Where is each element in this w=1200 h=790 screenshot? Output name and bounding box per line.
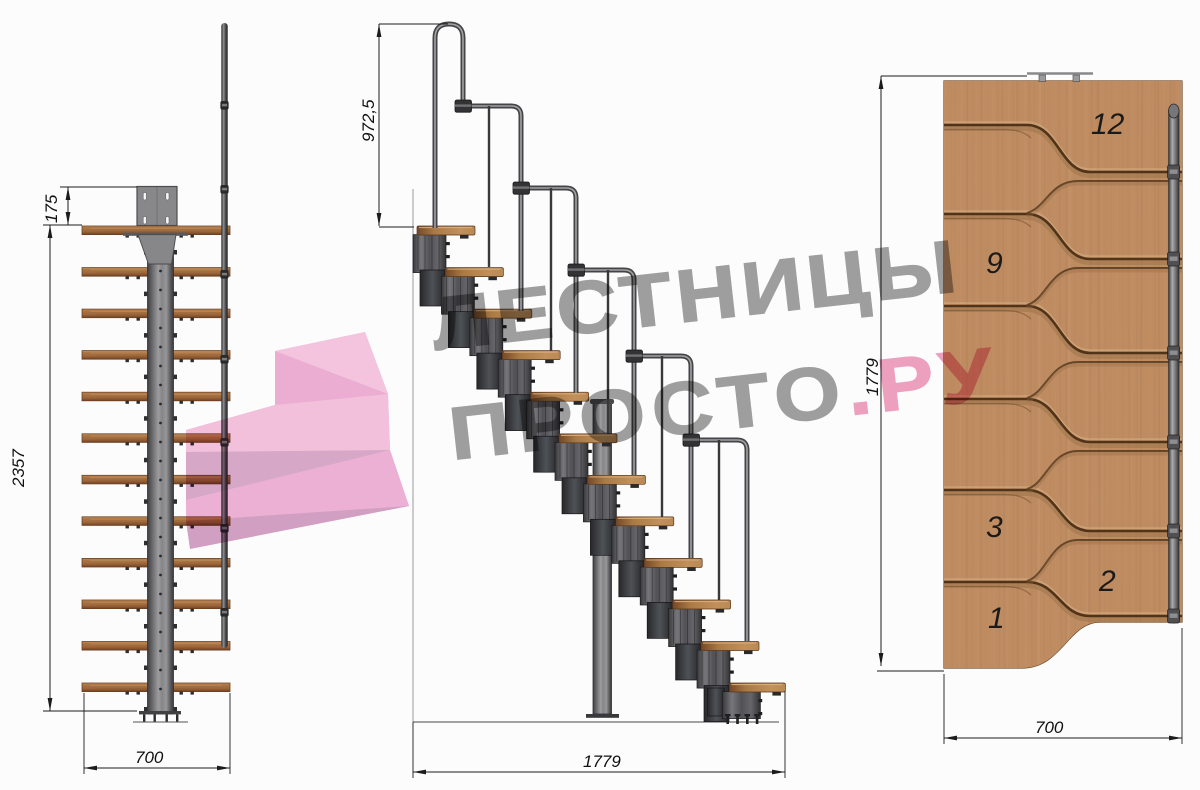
svg-text:9: 9 <box>986 247 1003 280</box>
svg-text:2357: 2357 <box>9 449 28 488</box>
svg-text:3: 3 <box>986 511 1003 544</box>
svg-text:175: 175 <box>42 194 61 223</box>
svg-text:12: 12 <box>1091 108 1125 141</box>
svg-text:700: 700 <box>135 748 164 767</box>
svg-text:1779: 1779 <box>583 752 621 771</box>
svg-text:700: 700 <box>1035 718 1064 737</box>
svg-text:1: 1 <box>988 602 1005 635</box>
svg-text:2: 2 <box>1098 565 1116 598</box>
svg-text:972,5: 972,5 <box>359 99 378 142</box>
